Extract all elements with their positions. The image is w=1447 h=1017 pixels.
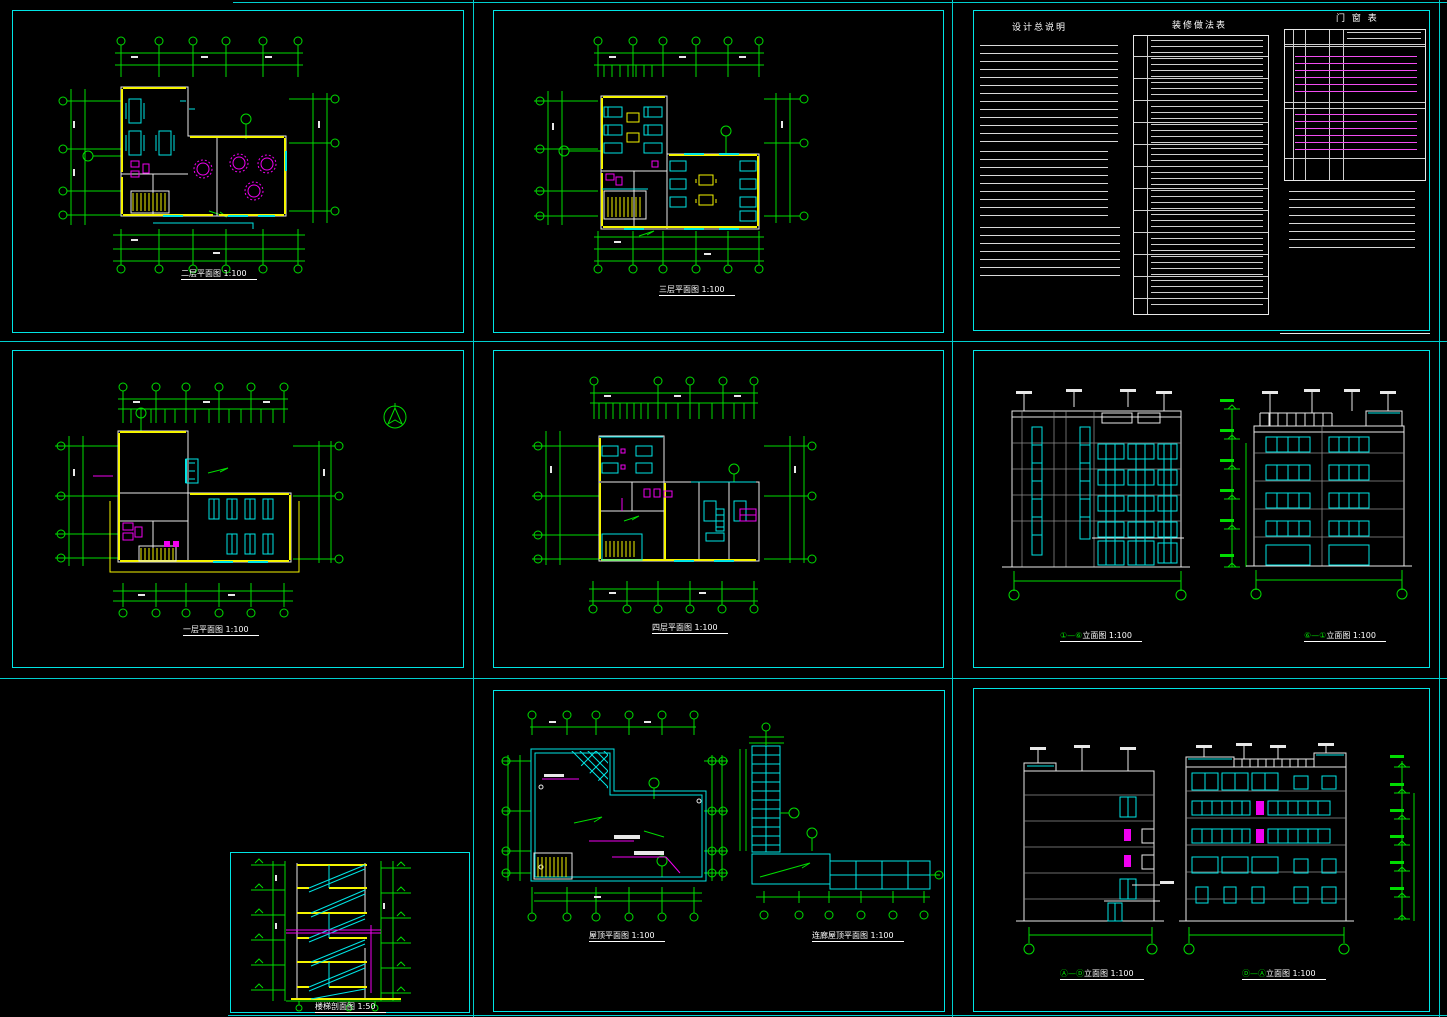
axis-range: Ⓐ—Ⓓ — [1060, 969, 1084, 978]
drawing-title-text: 立面图 1:100 — [1266, 969, 1316, 978]
sheet-boundary-line — [0, 678, 1447, 679]
floor-slabs — [291, 865, 401, 999]
stair — [602, 534, 642, 560]
drawing-title: 楼梯剖面图 1:50 — [315, 1002, 386, 1013]
drawing-title: Ⓓ—Ⓐ立面图 1:100 — [1242, 969, 1326, 980]
stair — [131, 191, 169, 213]
door-rows — [1295, 56, 1417, 98]
stair — [604, 191, 646, 219]
north-arrow-icon — [384, 403, 406, 428]
meeting-tables — [126, 99, 174, 155]
fixtures — [621, 449, 756, 521]
general-notes-text — [980, 151, 1108, 221]
cad-model-space: 二层平面图 1:100 — [0, 0, 1447, 1017]
drawing-title-text: 立面图 1:100 — [1082, 631, 1132, 640]
sheet-elevations-1-6: ①—⑥立面图 1:100 ⑥—①立面图 1:100 — [973, 350, 1430, 668]
roof-annotations — [542, 779, 680, 873]
sheet-roof-plan: 屋顶平面图 1:100 连廊屋顶平面图 1:100 — [493, 690, 945, 1012]
beds — [602, 446, 746, 541]
stair-flights — [309, 865, 365, 999]
plan-2f-drawing — [13, 11, 463, 332]
general-notes-title-text: 设计总说明 — [1012, 23, 1067, 33]
finish-table-title-text: 装修做法表 — [1172, 21, 1227, 31]
door-window-table-title: 门 窗 表 — [1336, 14, 1379, 24]
drawing-title-text: 立面图 1:100 — [1326, 631, 1376, 640]
drawing-title: 二层平面图 1:100 — [181, 269, 257, 280]
sheet-boundary-line — [952, 0, 953, 1017]
schedule-notes-text — [1289, 191, 1415, 249]
axis-range: Ⓓ—Ⓐ — [1242, 969, 1266, 978]
drawing-title: Ⓐ—Ⓓ立面图 1:100 — [1060, 969, 1144, 980]
axis-grid — [532, 377, 816, 613]
drawing-title-text: 楼梯剖面图 1:50 — [315, 1002, 376, 1011]
sheet-plan-4f: 四层平面图 1:100 — [493, 350, 944, 668]
classroom-desks — [209, 499, 273, 554]
axis-range: ⑥—① — [1304, 631, 1326, 640]
sheet-boundary-line — [228, 1015, 1447, 1016]
drawing-title: 四层平面图 1:100 — [652, 623, 728, 634]
drawing-title: 三层平面图 1:100 — [659, 285, 735, 296]
left-elevation — [1002, 389, 1190, 600]
finish-table-title: 装修做法表 — [1172, 21, 1227, 31]
plan-4f-drawing — [494, 351, 943, 667]
section-cut-line — [286, 925, 381, 993]
sheet-boundary-line — [233, 2, 1447, 3]
sheet-notes-schedules: 设计总说明 装修做法表 门 窗 表 — [973, 10, 1430, 331]
elevation-drawing — [974, 689, 1429, 1011]
corridor-roof — [740, 723, 943, 919]
drawing-title-text: 三层平面图 1:100 — [659, 285, 725, 294]
sheet-boundary-line — [1439, 0, 1440, 1017]
level-dimensions — [251, 859, 411, 1011]
sheet-plan-2f: 二层平面图 1:100 — [12, 10, 464, 333]
drawing-title: ⑥—①立面图 1:100 — [1304, 631, 1386, 642]
toilet-fixtures — [93, 476, 179, 547]
building-walls — [599, 436, 759, 561]
building-walls — [110, 431, 299, 572]
building-walls — [601, 96, 759, 229]
axis-grid — [502, 711, 728, 921]
axis-grid — [55, 383, 343, 617]
drawing-title-text: 四层平面图 1:100 — [652, 623, 718, 632]
dimension-text — [73, 401, 325, 596]
axis-grid — [59, 37, 339, 273]
roof-outline — [531, 739, 706, 881]
sheet-plan-1f: 一层平面图 1:100 — [12, 350, 464, 668]
border-fragment — [1280, 333, 1430, 334]
plan-1f-drawing — [13, 351, 463, 667]
dimension-text — [73, 56, 320, 254]
window-rows — [1295, 114, 1417, 156]
beds — [604, 107, 756, 221]
sheet-boundary-line — [0, 341, 1447, 342]
elevation-drawing — [974, 351, 1429, 667]
right-rear-elevation — [1179, 743, 1354, 954]
sheet-boundary-line — [473, 0, 474, 1017]
stair-section-drawing — [231, 853, 469, 1012]
sheet-elevations-a-d: Ⓐ—Ⓓ立面图 1:100 Ⓓ—Ⓐ立面图 1:100 — [973, 688, 1430, 1012]
plan-3f-drawing — [494, 11, 943, 332]
drawing-title-text: 二层平面图 1:100 — [181, 269, 247, 278]
drawing-title: 一层平面图 1:100 — [183, 625, 259, 636]
drawing-title-text: 一层平面图 1:100 — [183, 625, 249, 634]
general-notes-title: 设计总说明 — [1012, 23, 1067, 33]
fixtures — [606, 161, 658, 185]
stair — [139, 546, 176, 561]
left-side-elevation — [1016, 745, 1174, 954]
roof-plan-drawing — [494, 691, 944, 1011]
level-dimensions — [1390, 755, 1414, 921]
sheet-stair-section: 楼梯剖面图 1:50 — [230, 852, 470, 1013]
drawing-title-text: 屋顶平面图 1:100 — [589, 931, 655, 940]
level-dimensions — [1220, 399, 1246, 567]
drawing-title-text: 连廊屋顶平面图 1:100 — [812, 931, 894, 940]
door-window-table-title-text: 门 窗 表 — [1336, 14, 1379, 24]
drawing-title: 屋顶平面图 1:100 — [589, 931, 665, 942]
general-notes-text — [980, 227, 1120, 283]
building-walls — [121, 87, 286, 229]
drawing-title: 连廊屋顶平面图 1:100 — [812, 931, 904, 942]
general-notes-text — [980, 45, 1118, 145]
finish-table — [1133, 35, 1269, 315]
sheet-plan-3f: 三层平面图 1:100 — [493, 10, 944, 333]
drawing-title: ①—⑥立面图 1:100 — [1060, 631, 1142, 642]
drawing-title-text: 立面图 1:100 — [1084, 969, 1134, 978]
door-window-table — [1284, 29, 1426, 181]
axis-range: ①—⑥ — [1060, 631, 1082, 640]
right-elevation — [1246, 389, 1412, 599]
